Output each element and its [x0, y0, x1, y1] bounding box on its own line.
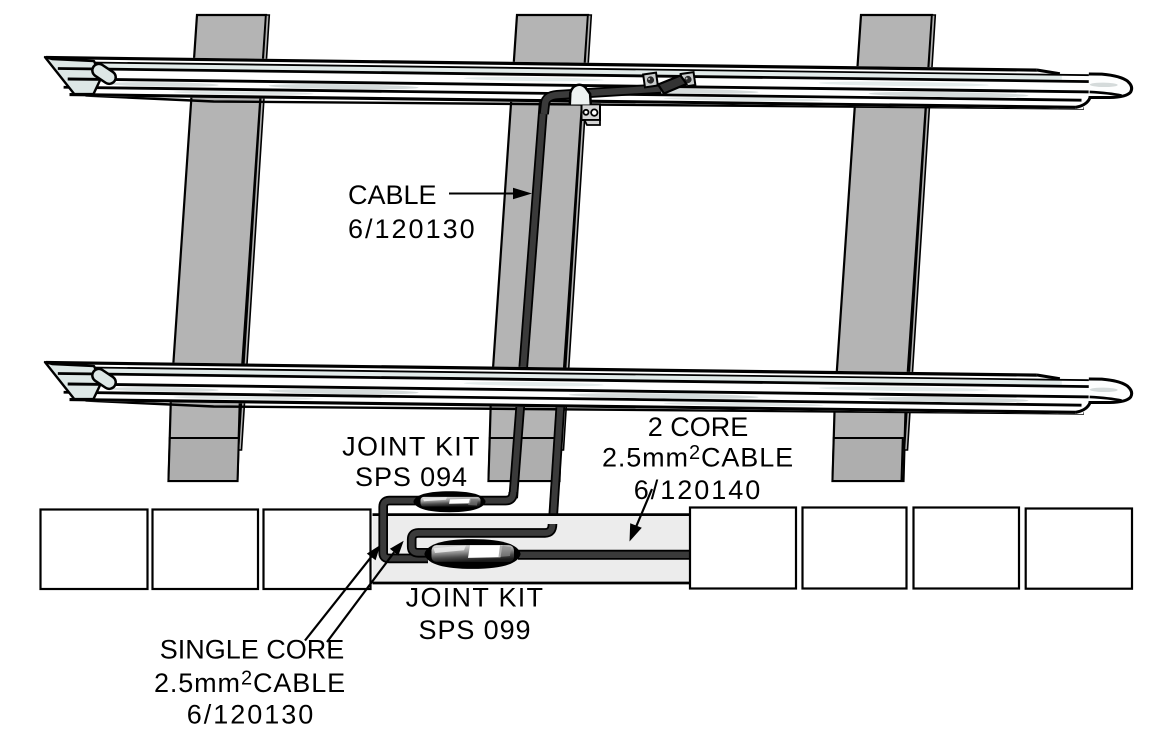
svg-text:SPS 099: SPS 099	[419, 615, 532, 645]
svg-text:JOINT KIT: JOINT KIT	[406, 583, 545, 613]
svg-text:SINGLE CORE: SINGLE CORE	[160, 635, 345, 665]
svg-text:6/120130: 6/120130	[187, 700, 316, 730]
svg-text:CABLE: CABLE	[348, 180, 437, 210]
svg-text:2 CORE: 2 CORE	[648, 412, 749, 442]
svg-text:6/120130: 6/120130	[348, 214, 477, 244]
svg-text:6/120140: 6/120140	[634, 475, 763, 505]
svg-text:SPS 094: SPS 094	[355, 462, 468, 492]
svg-text:JOINT KIT: JOINT KIT	[342, 432, 481, 462]
